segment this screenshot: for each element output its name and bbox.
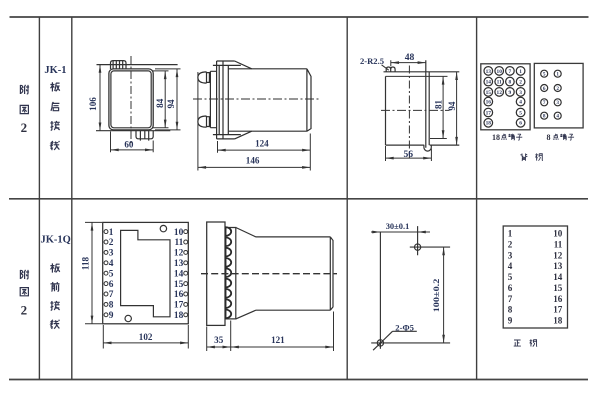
svg-text:2: 2: [508, 240, 513, 250]
svg-text:60: 60: [124, 139, 134, 149]
svg-text:1: 1: [519, 69, 522, 75]
svg-text:12: 12: [174, 249, 184, 259]
svg-text:16: 16: [174, 290, 184, 300]
svg-text:7: 7: [543, 100, 546, 106]
svg-text:12: 12: [553, 250, 563, 260]
svg-text:10: 10: [553, 229, 563, 239]
svg-text:2-Φ5: 2-Φ5: [395, 322, 414, 332]
svg-text:7: 7: [109, 290, 114, 300]
svg-text:10: 10: [174, 228, 184, 238]
svg-text:124: 124: [255, 138, 269, 148]
svg-text:8: 8: [509, 80, 512, 86]
svg-text:JK-1: JK-1: [44, 65, 66, 76]
svg-text:121: 121: [271, 335, 285, 345]
svg-text:18: 18: [492, 133, 500, 142]
svg-text:3: 3: [109, 249, 114, 259]
svg-text:6: 6: [109, 280, 114, 290]
svg-text:9: 9: [109, 311, 114, 321]
svg-text:2-R2.5: 2-R2.5: [360, 56, 384, 66]
svg-text:2: 2: [519, 80, 522, 86]
svg-text:JK-1Q: JK-1Q: [41, 235, 71, 246]
svg-text:18: 18: [486, 121, 492, 127]
svg-text:48: 48: [405, 52, 415, 63]
svg-text:118: 118: [81, 256, 91, 270]
svg-text:94: 94: [447, 101, 457, 111]
svg-text:17: 17: [553, 305, 563, 315]
svg-text:14: 14: [174, 269, 184, 279]
svg-text:13: 13: [553, 261, 563, 271]
svg-text:16: 16: [553, 294, 563, 304]
svg-text:18: 18: [174, 311, 184, 321]
svg-text:2: 2: [109, 238, 114, 248]
svg-text:12: 12: [497, 90, 503, 96]
svg-text:15: 15: [486, 90, 492, 96]
svg-text:8: 8: [109, 301, 114, 311]
svg-text:9: 9: [508, 316, 513, 326]
svg-text:81: 81: [434, 100, 444, 110]
svg-text:5: 5: [109, 269, 114, 279]
svg-text:94: 94: [166, 99, 176, 109]
svg-text:4: 4: [109, 259, 114, 269]
svg-text:106: 106: [88, 97, 98, 111]
svg-text:9: 9: [509, 90, 512, 96]
svg-text:102: 102: [139, 332, 153, 342]
svg-text:1: 1: [508, 229, 513, 239]
svg-text:146: 146: [246, 156, 260, 166]
svg-text:14: 14: [553, 272, 563, 282]
svg-text:17: 17: [174, 301, 184, 311]
svg-text:35: 35: [214, 335, 224, 345]
svg-text:4: 4: [556, 114, 559, 120]
svg-text:56: 56: [404, 149, 414, 160]
svg-text:7: 7: [508, 294, 513, 304]
svg-text:11: 11: [174, 238, 183, 248]
svg-text:14: 14: [486, 80, 492, 86]
svg-text:8: 8: [508, 305, 513, 315]
svg-text:10: 10: [497, 69, 503, 75]
svg-text:18: 18: [553, 316, 563, 326]
svg-text:6: 6: [508, 283, 513, 293]
svg-text:11: 11: [554, 240, 563, 250]
svg-text:13: 13: [174, 259, 184, 269]
svg-text:30±0.1: 30±0.1: [386, 221, 410, 231]
svg-text:13: 13: [486, 69, 492, 75]
svg-text:84: 84: [155, 98, 165, 108]
svg-text:17: 17: [486, 110, 492, 116]
svg-text:8: 8: [547, 133, 551, 142]
svg-text:7: 7: [509, 69, 512, 75]
svg-text:6: 6: [543, 86, 546, 92]
svg-text:16: 16: [486, 100, 492, 106]
svg-text:100±0.2: 100±0.2: [431, 279, 441, 313]
svg-text:1: 1: [556, 72, 559, 78]
svg-text:2: 2: [21, 303, 28, 318]
svg-text:2: 2: [556, 86, 559, 92]
svg-text:5: 5: [508, 272, 513, 282]
svg-text:2: 2: [21, 120, 28, 135]
svg-text:11: 11: [497, 80, 502, 86]
svg-text:5: 5: [543, 72, 546, 78]
svg-text:5: 5: [519, 110, 522, 116]
svg-text:3: 3: [508, 250, 513, 260]
svg-text:8: 8: [543, 114, 546, 120]
svg-text:4: 4: [508, 261, 513, 271]
svg-text:6: 6: [519, 121, 522, 127]
svg-text:3: 3: [556, 100, 559, 106]
svg-text:15: 15: [553, 283, 563, 293]
svg-text:4: 4: [519, 100, 522, 106]
svg-text:3: 3: [519, 90, 522, 96]
svg-text:1: 1: [109, 228, 114, 238]
svg-text:15: 15: [174, 280, 184, 290]
